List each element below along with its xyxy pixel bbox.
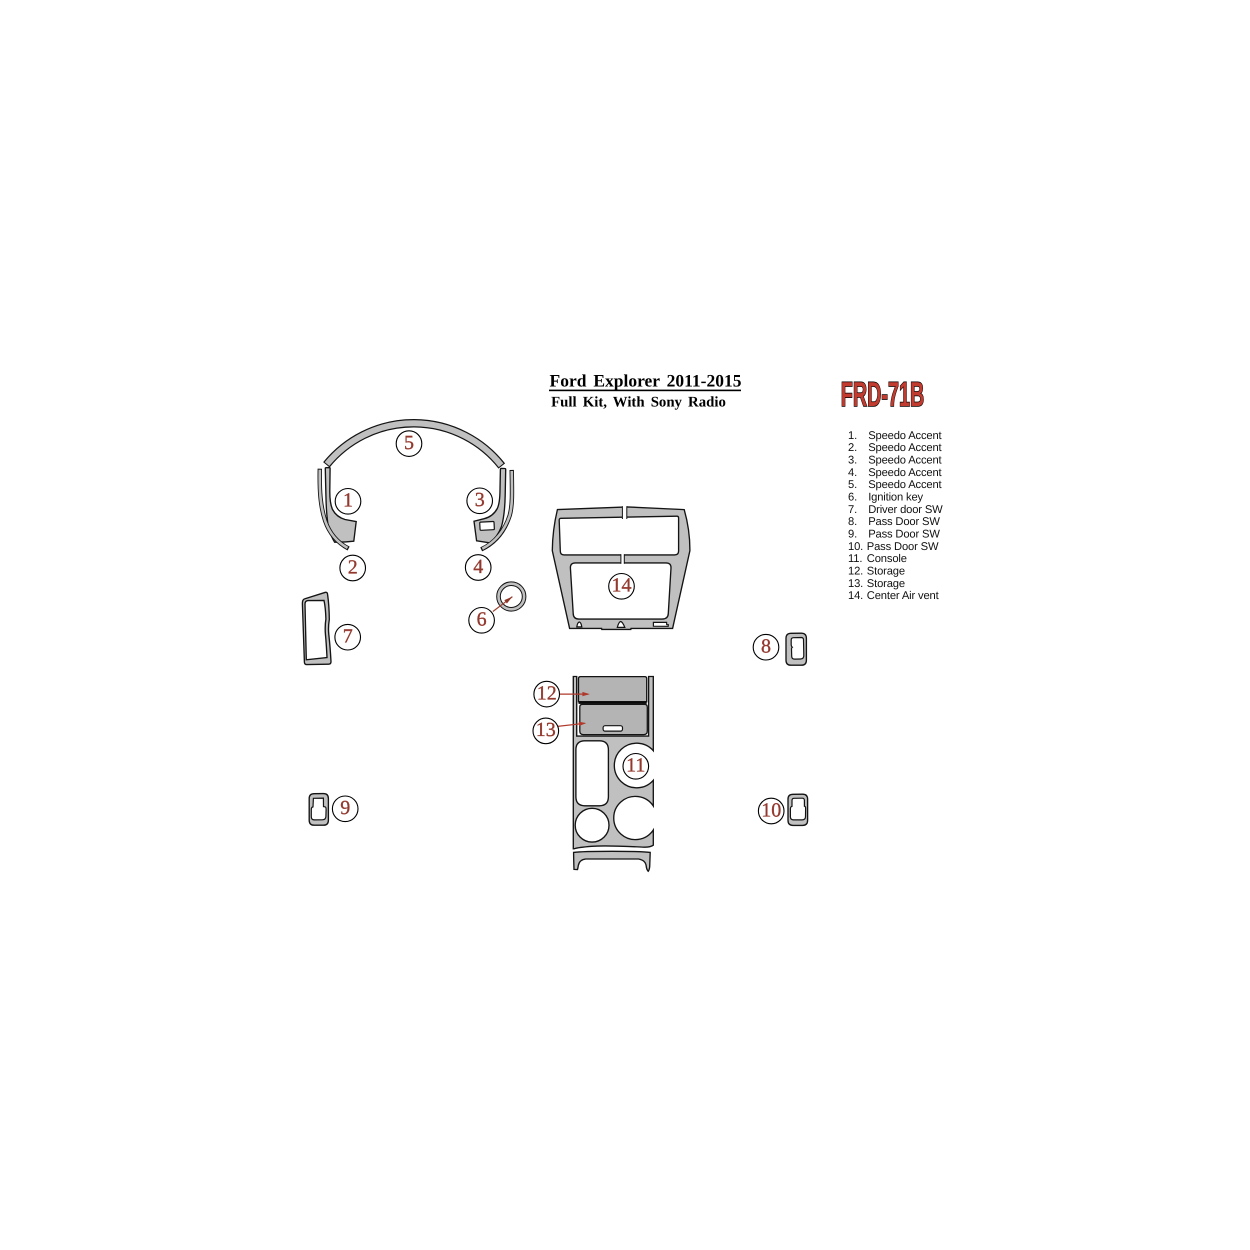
svg-text:3: 3 <box>475 489 485 511</box>
svg-text:5: 5 <box>404 432 414 454</box>
svg-text:13.Storage: 13.Storage <box>848 578 905 590</box>
svg-text:12: 12 <box>537 682 557 704</box>
svg-text:Full Kit, With Sony Radio: Full Kit, With Sony Radio <box>551 395 726 411</box>
svg-text:8: 8 <box>761 636 771 658</box>
svg-text:2: 2 <box>348 556 358 578</box>
svg-text:6: 6 <box>477 609 487 631</box>
svg-text:13: 13 <box>536 719 556 741</box>
svg-text:12.Storage: 12.Storage <box>848 566 905 578</box>
svg-text:14: 14 <box>612 575 632 597</box>
svg-text:4: 4 <box>473 556 483 578</box>
svg-text:11.Console: 11.Console <box>848 553 907 565</box>
svg-text:11: 11 <box>626 755 645 777</box>
svg-text:10.Pass Door SW: 10.Pass Door SW <box>848 541 939 553</box>
svg-text:Ford Explorer 2011-2015: Ford Explorer 2011-2015 <box>550 371 742 391</box>
svg-text:1: 1 <box>343 490 353 512</box>
svg-text:7: 7 <box>343 626 353 648</box>
svg-text:FRD-71B: FRD-71B <box>841 376 925 414</box>
svg-text:9: 9 <box>340 797 350 819</box>
svg-text:10: 10 <box>761 799 781 821</box>
svg-text:14.Center Air vent: 14.Center Air vent <box>848 590 940 602</box>
